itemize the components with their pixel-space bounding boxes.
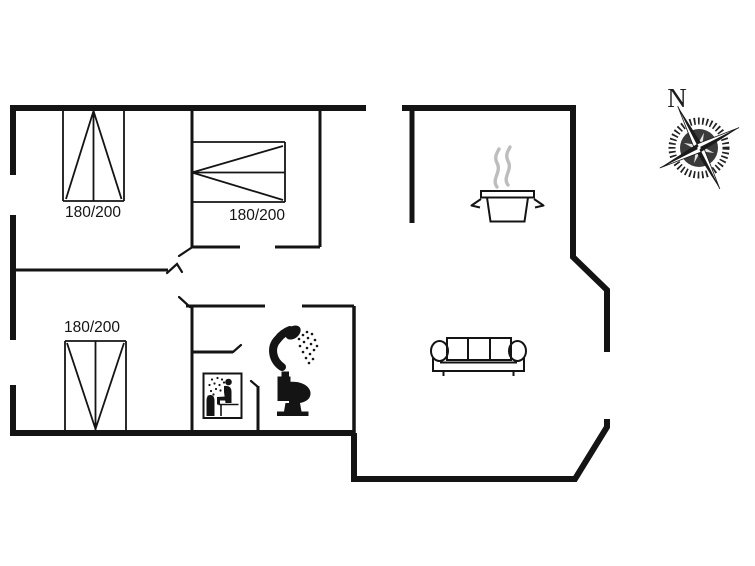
bed-size-label: 180/200	[65, 204, 121, 221]
sauna-stove	[207, 395, 215, 416]
compass-needle	[638, 86, 755, 209]
floor-plan-drawing: 180/200 180/200 180/200	[0, 0, 755, 566]
compass-north-label: N	[667, 83, 687, 113]
steam-icon	[495, 147, 510, 187]
cooking-pot-icon	[472, 147, 544, 222]
double-bed-top-left	[63, 111, 124, 201]
shower-spray-dots	[298, 331, 319, 365]
bed-size-label: 180/200	[229, 207, 285, 224]
double-bed-top-middle	[192, 142, 285, 202]
bed-size-label: 180/200	[64, 319, 120, 336]
shower-icon	[273, 323, 318, 367]
double-bed-bottom-left	[65, 341, 126, 430]
toilet-icon	[277, 372, 311, 417]
exterior-walls	[13, 108, 607, 479]
sauna-icon	[204, 374, 242, 419]
floor-plan: 180/200 180/200 180/200	[0, 0, 755, 566]
compass-center-dot	[697, 146, 700, 149]
compass-rose-icon: N	[638, 83, 755, 209]
door-swing-marks	[167, 248, 258, 387]
sofa-icon	[431, 338, 526, 376]
